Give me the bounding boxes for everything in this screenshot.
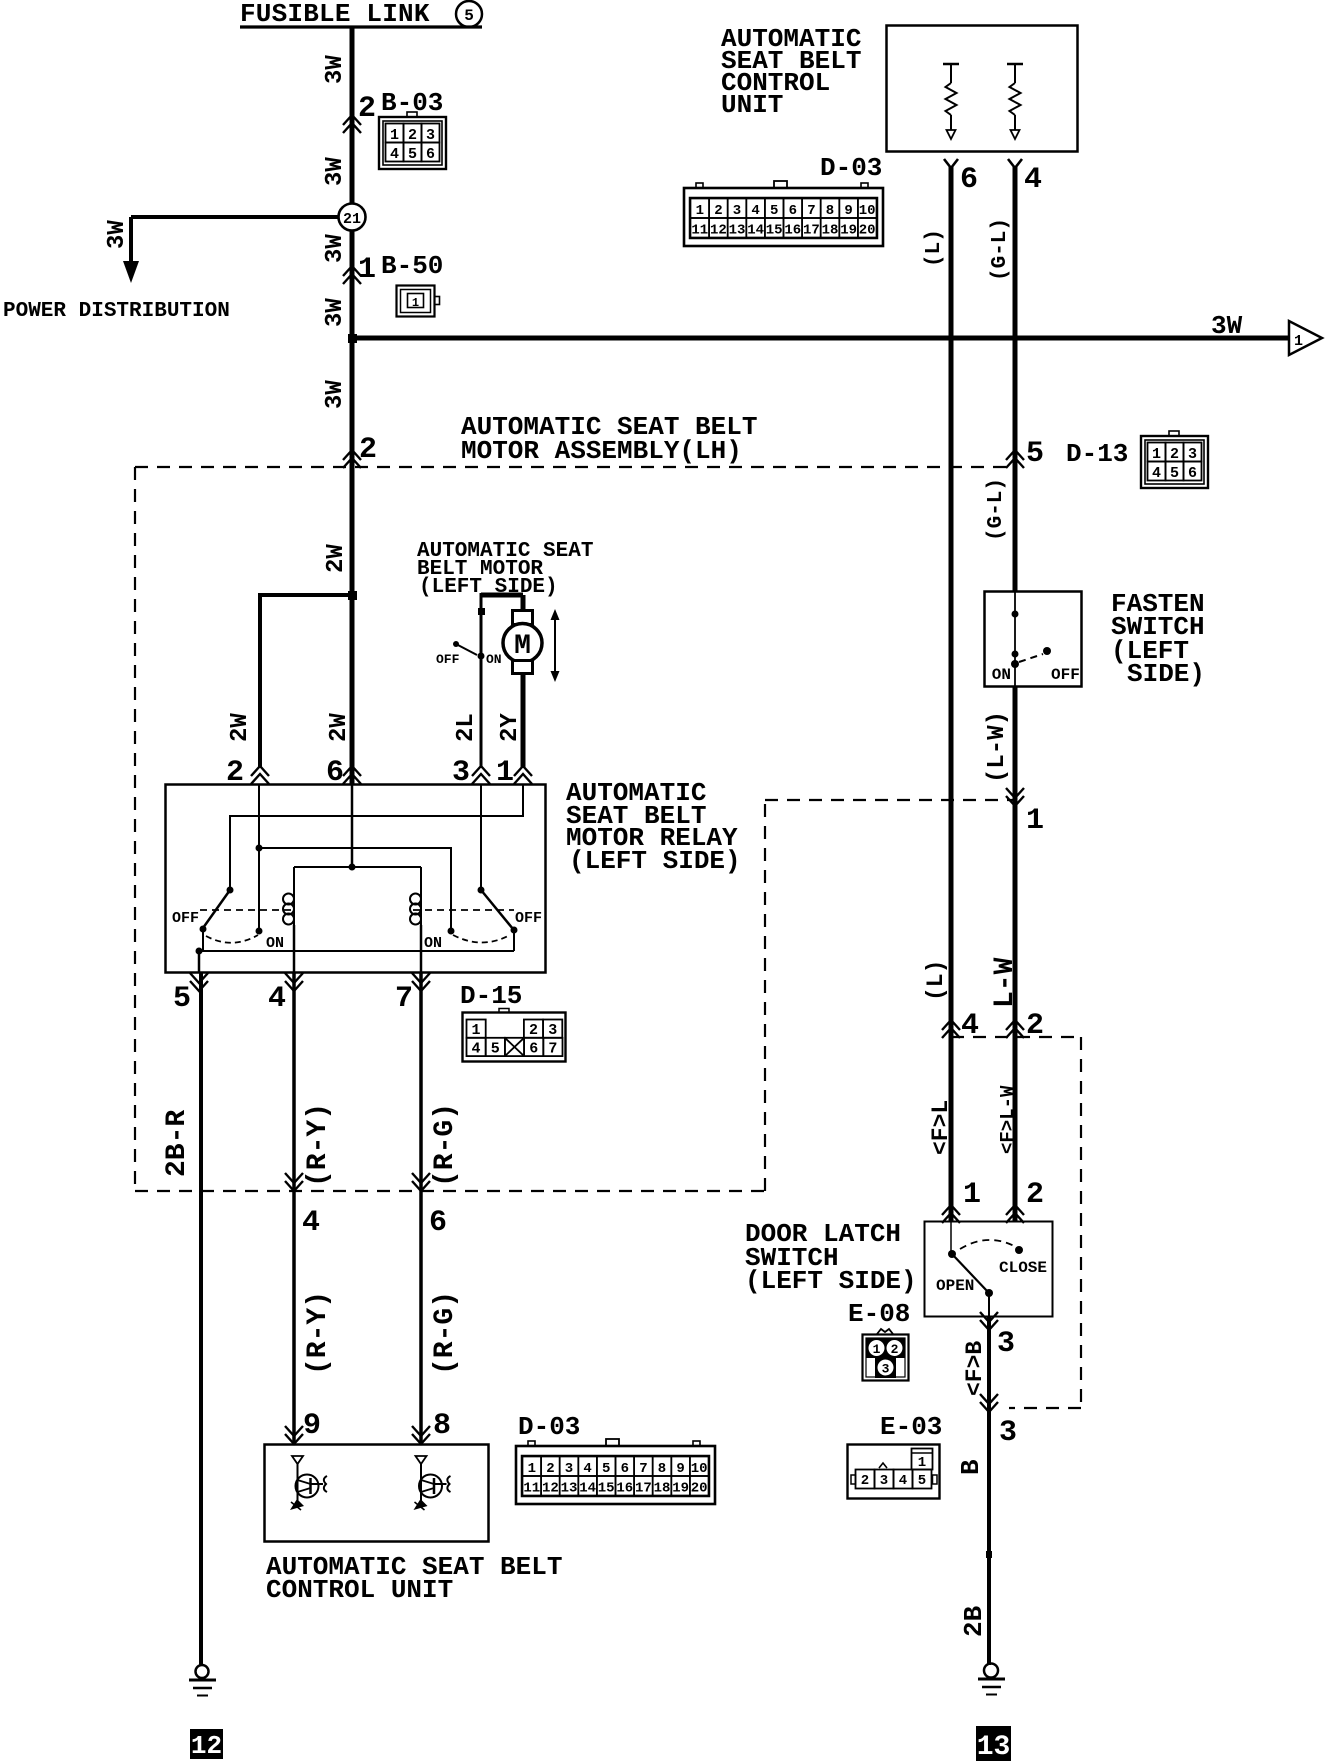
svg-text:2: 2 [359,433,377,467]
svg-text:21: 21 [343,211,361,228]
svg-text:(R-Y): (R-Y) [303,1291,334,1375]
svg-text:3W: 3W [322,157,349,186]
svg-text:3: 3 [548,1022,557,1039]
svg-text:1: 1 [918,1455,926,1471]
svg-text:3W: 3W [322,55,349,84]
svg-text:CONTROL UNIT: CONTROL UNIT [266,1575,453,1605]
svg-text:L-W: L-W [990,957,1021,1008]
svg-text:OFF: OFF [515,910,542,927]
svg-text:12: 12 [191,1731,222,1761]
svg-text:3: 3 [880,1473,888,1489]
svg-text:OFF: OFF [172,910,199,927]
svg-text:6: 6 [429,1206,447,1240]
svg-text:FUSIBLE LINK: FUSIBLE LINK [240,0,430,29]
svg-text:6: 6 [960,163,978,197]
svg-text:D-13: D-13 [1066,439,1128,469]
svg-text:3W: 3W [322,234,349,263]
svg-text:D-03: D-03 [820,153,882,183]
svg-text:2W: 2W [227,713,254,742]
svg-text:3W: 3W [322,298,349,327]
svg-text:3: 3 [997,1327,1015,1361]
svg-text:(L): (L) [923,229,946,267]
svg-text:8: 8 [433,1409,451,1443]
svg-text:2: 2 [861,1473,869,1489]
svg-text:B: B [956,1459,986,1475]
svg-text:ON: ON [266,935,284,952]
svg-text:3W: 3W [104,220,131,249]
svg-text:OFF: OFF [1051,666,1080,684]
svg-text:1: 1 [1294,333,1303,350]
svg-text:4: 4 [1024,163,1042,197]
svg-text:OFF: OFF [436,652,460,667]
svg-text:1: 1 [358,253,376,287]
svg-text:5: 5 [491,1041,500,1058]
svg-text:2Y: 2Y [497,713,524,742]
svg-text:(G-L): (G-L) [985,478,1008,541]
svg-text:1: 1 [412,296,419,310]
svg-text:<F>B: <F>B [962,1341,988,1396]
svg-text:(L): (L) [923,960,949,1001]
svg-text:(LEFT SIDE): (LEFT SIDE) [569,846,741,876]
svg-text:CLOSE: CLOSE [999,1259,1047,1277]
svg-text:OPEN: OPEN [936,1277,974,1295]
svg-text:9: 9 [303,1409,321,1443]
svg-text:SIDE): SIDE) [1127,659,1205,689]
svg-text:1: 1 [1026,804,1044,838]
svg-text:3: 3 [882,1362,890,1377]
svg-text:2L: 2L [453,713,480,742]
svg-text:5: 5 [1026,437,1044,471]
svg-text:M: M [514,631,531,662]
svg-text:2B-R: 2B-R [162,1110,193,1177]
svg-text:4: 4 [961,1009,979,1043]
svg-text:1: 1 [471,1022,480,1039]
svg-text:POWER DISTRIBUTION: POWER DISTRIBUTION [3,300,230,323]
svg-text:(LEFT SIDE): (LEFT SIDE) [745,1266,917,1296]
svg-text:2: 2 [1026,1178,1044,1212]
svg-text:B-50: B-50 [381,251,443,281]
svg-text:7: 7 [548,1041,557,1058]
svg-text:UNIT: UNIT [721,90,783,120]
svg-text:2W: 2W [326,713,353,742]
svg-text:(G-L): (G-L) [989,218,1012,281]
svg-text:5: 5 [173,982,191,1016]
svg-text:5: 5 [918,1473,926,1489]
svg-text:(R-G): (R-G) [430,1103,461,1187]
svg-text:2: 2 [529,1022,538,1039]
svg-text:<F>L-W: <F>L-W [997,1085,1019,1154]
svg-text:2: 2 [1026,1009,1044,1043]
svg-text:<F>L: <F>L [928,1100,954,1155]
svg-text:7: 7 [395,982,413,1016]
svg-text:(R-Y): (R-Y) [303,1103,334,1187]
svg-text:3W: 3W [322,380,349,409]
svg-text:2: 2 [358,92,376,126]
svg-text:1: 1 [963,1178,981,1212]
svg-text:3: 3 [999,1416,1017,1450]
svg-text:1: 1 [873,1342,881,1357]
svg-text:MOTOR ASSEMBLY(LH): MOTOR ASSEMBLY(LH) [461,436,742,466]
svg-text:ON: ON [486,652,502,667]
svg-text:6: 6 [529,1041,538,1058]
svg-text:(L-W): (L-W) [984,711,1011,783]
svg-text:2: 2 [891,1342,899,1357]
svg-text:4: 4 [302,1206,320,1240]
svg-text:(R-G): (R-G) [430,1291,461,1375]
svg-text:E-08: E-08 [848,1299,910,1329]
svg-text:4: 4 [268,982,286,1016]
svg-text:E-03: E-03 [880,1412,942,1442]
svg-text:ON: ON [992,666,1011,684]
svg-text:D-15: D-15 [460,981,522,1011]
svg-text:2B: 2B [959,1605,989,1637]
svg-text:ON: ON [424,935,442,952]
svg-text:B-03: B-03 [381,88,443,118]
svg-text:4: 4 [471,1041,480,1058]
svg-text:4: 4 [899,1473,907,1489]
svg-text:2W: 2W [323,544,350,573]
svg-text:D-03: D-03 [518,1412,580,1442]
svg-text:13: 13 [977,1732,1011,1763]
svg-text:5: 5 [464,7,474,25]
svg-text:3W: 3W [1211,311,1243,341]
